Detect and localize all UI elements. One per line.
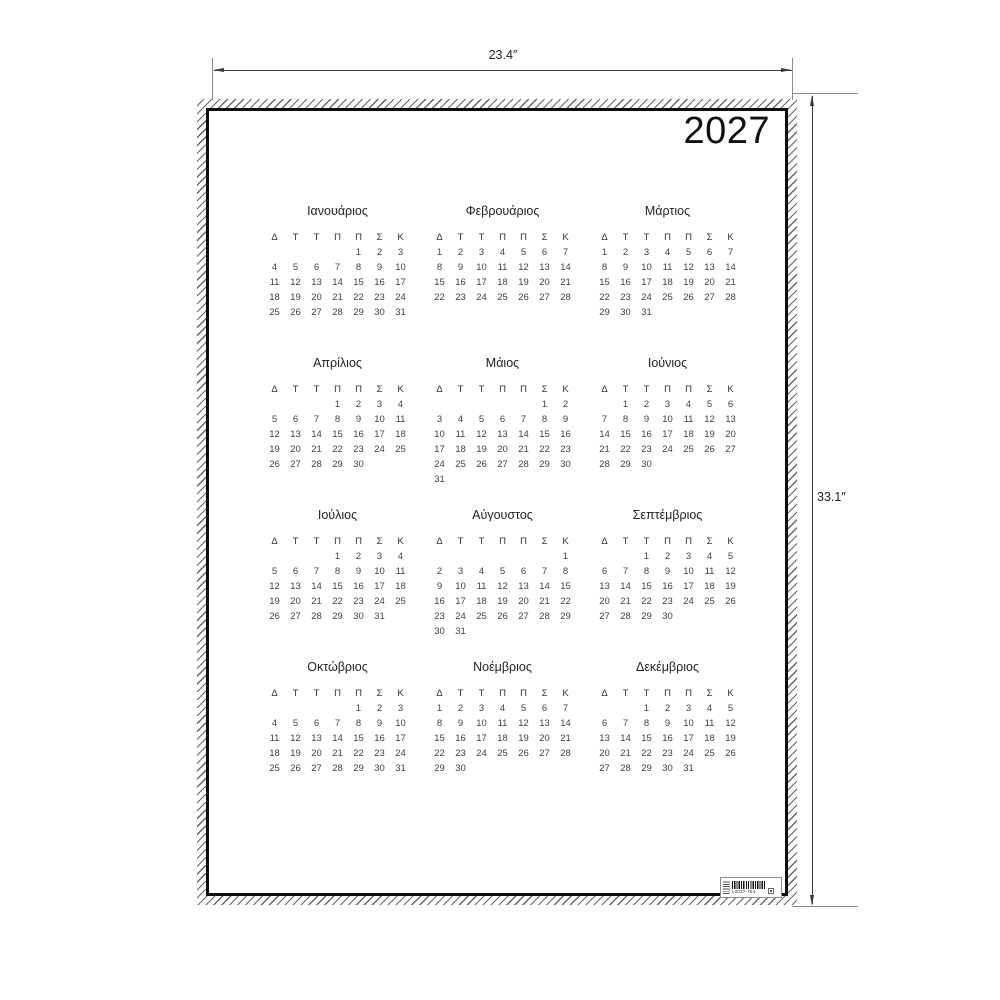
week-row: 6789101112 <box>594 716 741 731</box>
day-cell: 16 <box>636 427 657 442</box>
day-header: Π <box>327 685 348 701</box>
day-cell: 15 <box>327 427 348 442</box>
day-header-row: ΔΤΤΠΠΣΚ <box>264 229 411 245</box>
day-header: Δ <box>264 381 285 397</box>
day-cell: 19 <box>720 579 741 594</box>
day-cell: 26 <box>513 290 534 305</box>
day-cell: 5 <box>264 564 285 579</box>
day-cell <box>264 245 285 260</box>
calendar-poster: 2027 ΙανουάριοςΔΤΤΠΠΣΚ123456789101112131… <box>206 108 788 896</box>
day-cell: 9 <box>369 716 390 731</box>
day-cell: 25 <box>264 305 285 320</box>
week-row: 16171819202122 <box>429 594 576 609</box>
day-cell <box>264 701 285 716</box>
week-row: 3031 <box>429 624 576 639</box>
day-cell: 26 <box>492 609 513 624</box>
day-cell: 21 <box>513 442 534 457</box>
week-row: 3456789 <box>429 412 576 427</box>
day-cell: 3 <box>390 245 411 260</box>
day-cell: 29 <box>348 305 369 320</box>
month-block: ΙανουάριοςΔΤΤΠΠΣΚ12345678910111213141516… <box>264 204 411 356</box>
day-cell: 18 <box>390 579 411 594</box>
day-cell: 10 <box>471 260 492 275</box>
day-cell: 31 <box>678 761 699 776</box>
day-header: Σ <box>699 381 720 397</box>
day-cell: 8 <box>615 412 636 427</box>
day-cell: 18 <box>450 442 471 457</box>
day-cell <box>369 457 390 472</box>
day-cell: 29 <box>534 457 555 472</box>
day-cell: 14 <box>720 260 741 275</box>
day-cell: 31 <box>369 609 390 624</box>
day-cell: 9 <box>657 716 678 731</box>
months-grid: ΙανουάριοςΔΤΤΠΠΣΚ12345678910111213141516… <box>264 204 741 812</box>
week-row: 19202122232425 <box>264 442 411 457</box>
week-row: 1234567 <box>429 245 576 260</box>
day-header: Π <box>492 381 513 397</box>
day-header: Τ <box>636 533 657 549</box>
day-cell: 25 <box>492 746 513 761</box>
day-cell <box>513 761 534 776</box>
week-row: 293031 <box>594 305 741 320</box>
month-calendar: ΔΤΤΠΠΣΚ123456789101112131415161718192021… <box>429 229 576 305</box>
day-cell: 25 <box>390 442 411 457</box>
day-cell <box>492 761 513 776</box>
week-row: 891011121314 <box>429 260 576 275</box>
bleed-hatch-frame: 2027 ΙανουάριοςΔΤΤΠΠΣΚ123456789101112131… <box>197 99 797 905</box>
day-cell: 1 <box>327 549 348 564</box>
day-header: Τ <box>306 685 327 701</box>
day-cell: 18 <box>657 275 678 290</box>
day-cell: 9 <box>429 579 450 594</box>
day-cell: 23 <box>348 442 369 457</box>
day-cell: 7 <box>534 564 555 579</box>
day-cell: 4 <box>699 549 720 564</box>
day-cell: 25 <box>492 290 513 305</box>
day-cell: 20 <box>513 594 534 609</box>
week-row: 123 <box>264 701 411 716</box>
month-calendar: ΔΤΤΠΠΣΚ123456789101112131415161718192021… <box>264 685 411 776</box>
day-header: Π <box>327 533 348 549</box>
day-cell: 18 <box>492 275 513 290</box>
day-cell: 25 <box>450 457 471 472</box>
day-cell: 26 <box>264 609 285 624</box>
day-cell: 21 <box>615 594 636 609</box>
day-header: Τ <box>285 229 306 245</box>
day-cell: 20 <box>534 731 555 746</box>
week-row: 18192021222324 <box>264 746 411 761</box>
day-header: Τ <box>471 685 492 701</box>
day-header: Τ <box>636 381 657 397</box>
day-cell: 10 <box>471 716 492 731</box>
day-cell: 24 <box>369 442 390 457</box>
day-cell: 28 <box>615 609 636 624</box>
day-cell <box>306 549 327 564</box>
day-cell: 1 <box>429 701 450 716</box>
day-cell: 14 <box>327 731 348 746</box>
day-header: Κ <box>720 381 741 397</box>
day-cell: 1 <box>636 701 657 716</box>
day-header: Κ <box>390 229 411 245</box>
day-header: Κ <box>555 533 576 549</box>
day-cell <box>285 397 306 412</box>
week-row: 13141516171819 <box>594 579 741 594</box>
day-cell: 9 <box>615 260 636 275</box>
dim-extension-right-bottom <box>792 906 858 907</box>
week-row: 12131415161718 <box>264 579 411 594</box>
day-header-row: ΔΤΤΠΠΣΚ <box>429 533 576 549</box>
day-cell: 18 <box>699 731 720 746</box>
dim-arrow-up-icon <box>810 95 814 106</box>
week-row: 45678910 <box>264 716 411 731</box>
day-cell: 9 <box>450 716 471 731</box>
day-cell: 5 <box>513 701 534 716</box>
day-cell <box>513 549 534 564</box>
day-cell: 5 <box>285 260 306 275</box>
month-calendar: ΔΤΤΠΠΣΚ123456789101112131415161718192021… <box>429 381 576 487</box>
day-cell: 19 <box>471 442 492 457</box>
day-cell: 20 <box>594 746 615 761</box>
day-cell: 1 <box>636 549 657 564</box>
day-cell: 11 <box>471 579 492 594</box>
day-cell: 7 <box>615 716 636 731</box>
day-cell: 15 <box>594 275 615 290</box>
day-cell: 10 <box>369 412 390 427</box>
day-cell: 21 <box>534 594 555 609</box>
day-cell: 8 <box>429 716 450 731</box>
day-cell: 8 <box>348 716 369 731</box>
day-cell: 24 <box>471 746 492 761</box>
week-row: 18192021222324 <box>264 290 411 305</box>
day-cell: 12 <box>678 260 699 275</box>
barcode-center: L2027-754 <box>732 881 766 894</box>
day-cell: 26 <box>513 746 534 761</box>
week-row: 567891011 <box>264 412 411 427</box>
day-cell: 25 <box>699 594 720 609</box>
month-title: Απρίλιος <box>264 356 411 370</box>
day-header: Τ <box>471 381 492 397</box>
day-cell: 4 <box>699 701 720 716</box>
month-block: ΑύγουστοςΔΤΤΠΠΣΚ123456789101112131415161… <box>429 508 576 660</box>
day-header: Τ <box>285 381 306 397</box>
day-cell: 17 <box>657 427 678 442</box>
day-cell: 31 <box>390 761 411 776</box>
day-cell: 9 <box>636 412 657 427</box>
day-cell: 6 <box>594 716 615 731</box>
day-cell: 21 <box>555 731 576 746</box>
day-cell: 23 <box>657 594 678 609</box>
day-cell: 30 <box>657 609 678 624</box>
day-header: Κ <box>720 685 741 701</box>
day-cell: 4 <box>678 397 699 412</box>
day-cell: 24 <box>450 609 471 624</box>
day-cell: 17 <box>390 275 411 290</box>
day-cell: 27 <box>285 457 306 472</box>
day-cell: 7 <box>513 412 534 427</box>
week-row: 1234567 <box>594 245 741 260</box>
day-cell <box>492 549 513 564</box>
month-title: Δεκέμβριος <box>594 660 741 674</box>
day-cell: 21 <box>720 275 741 290</box>
day-cell: 11 <box>450 427 471 442</box>
day-cell: 18 <box>390 427 411 442</box>
day-cell: 2 <box>369 245 390 260</box>
day-cell: 21 <box>615 746 636 761</box>
day-cell <box>306 397 327 412</box>
day-cell: 10 <box>369 564 390 579</box>
day-cell: 3 <box>429 412 450 427</box>
day-cell <box>471 624 492 639</box>
day-header: Π <box>348 685 369 701</box>
day-cell <box>720 305 741 320</box>
day-cell: 19 <box>678 275 699 290</box>
day-cell: 5 <box>285 716 306 731</box>
day-cell: 13 <box>492 427 513 442</box>
day-cell: 15 <box>636 579 657 594</box>
day-cell: 2 <box>429 564 450 579</box>
month-title: Αύγουστος <box>429 508 576 522</box>
day-header: Κ <box>555 381 576 397</box>
day-cell: 4 <box>264 260 285 275</box>
day-header: Τ <box>615 381 636 397</box>
day-cell: 11 <box>492 260 513 275</box>
day-cell: 2 <box>657 549 678 564</box>
day-cell: 11 <box>264 731 285 746</box>
day-cell: 28 <box>555 746 576 761</box>
day-cell: 22 <box>348 746 369 761</box>
day-cell: 1 <box>555 549 576 564</box>
day-cell: 5 <box>264 412 285 427</box>
day-cell: 28 <box>327 761 348 776</box>
day-header: Τ <box>450 685 471 701</box>
week-row: 21222324252627 <box>594 442 741 457</box>
year-title: 2027 <box>683 111 770 151</box>
day-cell: 23 <box>348 594 369 609</box>
month-block: ΣεπτέμβριοςΔΤΤΠΠΣΚ1234567891011121314151… <box>594 508 741 660</box>
day-cell: 23 <box>369 290 390 305</box>
day-cell: 7 <box>594 412 615 427</box>
day-cell: 22 <box>636 594 657 609</box>
week-row: 14151617181920 <box>594 427 741 442</box>
day-cell <box>534 472 555 487</box>
day-header-row: ΔΤΤΠΠΣΚ <box>594 229 741 245</box>
day-cell: 4 <box>390 397 411 412</box>
dim-line-height <box>812 96 813 904</box>
dim-arrow-down-icon <box>810 895 814 906</box>
day-cell: 3 <box>678 701 699 716</box>
day-cell: 27 <box>699 290 720 305</box>
barcode-bars-icon <box>732 881 766 889</box>
week-row: 10111213141516 <box>429 427 576 442</box>
day-cell: 25 <box>264 761 285 776</box>
day-cell: 5 <box>471 412 492 427</box>
day-cell: 23 <box>429 609 450 624</box>
day-cell <box>699 761 720 776</box>
day-cell: 6 <box>594 564 615 579</box>
day-cell: 7 <box>306 564 327 579</box>
week-row: 19202122232425 <box>264 594 411 609</box>
day-cell: 22 <box>555 594 576 609</box>
day-cell: 20 <box>720 427 741 442</box>
day-cell: 15 <box>429 731 450 746</box>
day-cell <box>327 245 348 260</box>
day-cell: 9 <box>555 412 576 427</box>
day-cell: 28 <box>720 290 741 305</box>
day-cell: 20 <box>285 594 306 609</box>
day-cell <box>429 549 450 564</box>
day-cell: 22 <box>534 442 555 457</box>
month-block: ΙούλιοςΔΤΤΠΠΣΚ12345678910111213141516171… <box>264 508 411 660</box>
day-header-row: ΔΤΤΠΠΣΚ <box>429 229 576 245</box>
day-cell: 16 <box>657 731 678 746</box>
day-cell: 11 <box>657 260 678 275</box>
day-cell: 30 <box>348 609 369 624</box>
day-cell: 13 <box>285 427 306 442</box>
day-header: Δ <box>429 381 450 397</box>
day-header: Τ <box>306 533 327 549</box>
day-cell: 2 <box>450 245 471 260</box>
day-cell: 29 <box>594 305 615 320</box>
day-cell: 6 <box>306 260 327 275</box>
day-header-row: ΔΤΤΠΠΣΚ <box>429 685 576 701</box>
day-header: Π <box>327 229 348 245</box>
day-cell: 26 <box>720 746 741 761</box>
week-row: 24252627282930 <box>429 457 576 472</box>
day-header: Τ <box>285 685 306 701</box>
day-cell: 21 <box>327 290 348 305</box>
day-cell: 28 <box>615 761 636 776</box>
day-cell: 17 <box>450 594 471 609</box>
day-header: Π <box>657 685 678 701</box>
day-cell: 14 <box>534 579 555 594</box>
day-cell: 13 <box>594 579 615 594</box>
day-cell <box>555 472 576 487</box>
day-cell: 6 <box>699 245 720 260</box>
day-cell: 23 <box>369 746 390 761</box>
day-cell <box>450 472 471 487</box>
day-cell <box>513 624 534 639</box>
month-calendar: ΔΤΤΠΠΣΚ123456789101112131415161718192021… <box>594 381 741 472</box>
day-cell: 2 <box>369 701 390 716</box>
month-title: Ιούνιος <box>594 356 741 370</box>
day-cell: 4 <box>492 701 513 716</box>
day-cell: 30 <box>615 305 636 320</box>
day-cell: 10 <box>636 260 657 275</box>
week-row: 1234 <box>264 397 411 412</box>
week-row: 891011121314 <box>429 716 576 731</box>
day-cell: 28 <box>594 457 615 472</box>
day-cell: 24 <box>678 594 699 609</box>
day-cell: 23 <box>636 442 657 457</box>
day-cell: 29 <box>348 761 369 776</box>
day-cell: 24 <box>636 290 657 305</box>
day-cell: 1 <box>615 397 636 412</box>
month-title: Οκτώβριος <box>264 660 411 674</box>
day-cell: 16 <box>657 579 678 594</box>
day-cell: 15 <box>534 427 555 442</box>
week-row: 22232425262728 <box>429 746 576 761</box>
day-cell: 28 <box>306 609 327 624</box>
month-title: Μάρτιος <box>594 204 741 218</box>
day-cell: 17 <box>471 275 492 290</box>
day-cell: 9 <box>348 412 369 427</box>
day-header: Π <box>657 229 678 245</box>
day-cell: 10 <box>390 716 411 731</box>
day-cell: 13 <box>513 579 534 594</box>
day-cell: 29 <box>327 457 348 472</box>
day-cell <box>471 761 492 776</box>
day-header: Τ <box>471 533 492 549</box>
day-header: Δ <box>594 381 615 397</box>
day-cell: 13 <box>306 731 327 746</box>
day-cell: 8 <box>555 564 576 579</box>
day-cell: 21 <box>594 442 615 457</box>
day-cell: 31 <box>390 305 411 320</box>
day-cell: 2 <box>450 701 471 716</box>
week-row: 123 <box>264 245 411 260</box>
day-header: Π <box>348 533 369 549</box>
week-row: 1 <box>429 549 576 564</box>
day-cell: 19 <box>699 427 720 442</box>
height-dimension-label: 33.1″ <box>817 490 846 504</box>
week-row: 2627282930 <box>264 457 411 472</box>
day-cell: 1 <box>327 397 348 412</box>
day-cell: 26 <box>285 305 306 320</box>
day-cell: 16 <box>369 731 390 746</box>
day-cell: 7 <box>555 701 576 716</box>
day-cell: 6 <box>492 412 513 427</box>
day-cell: 11 <box>390 564 411 579</box>
day-cell <box>594 549 615 564</box>
day-header: Τ <box>615 685 636 701</box>
day-cell: 3 <box>657 397 678 412</box>
week-row: 25262728293031 <box>264 305 411 320</box>
day-cell: 30 <box>369 761 390 776</box>
day-cell: 2 <box>657 701 678 716</box>
day-cell: 23 <box>657 746 678 761</box>
dim-arrow-right-icon <box>781 68 792 72</box>
day-cell: 8 <box>327 564 348 579</box>
day-cell <box>492 472 513 487</box>
day-cell: 3 <box>450 564 471 579</box>
week-row: 78910111213 <box>594 412 741 427</box>
day-cell: 12 <box>471 427 492 442</box>
day-cell: 13 <box>306 275 327 290</box>
day-cell: 29 <box>327 609 348 624</box>
week-row: 11121314151617 <box>264 275 411 290</box>
day-cell: 13 <box>534 260 555 275</box>
day-cell: 28 <box>555 290 576 305</box>
day-cell: 16 <box>348 427 369 442</box>
day-cell <box>285 549 306 564</box>
day-cell: 29 <box>555 609 576 624</box>
day-cell: 27 <box>534 746 555 761</box>
month-block: ΦεβρουάριοςΔΤΤΠΠΣΚ1234567891011121314151… <box>429 204 576 356</box>
day-cell: 6 <box>534 701 555 716</box>
day-cell: 19 <box>264 442 285 457</box>
day-cell: 3 <box>636 245 657 260</box>
day-cell: 27 <box>306 305 327 320</box>
month-block: ΜάιοςΔΤΤΠΠΣΚ1234567891011121314151617181… <box>429 356 576 508</box>
day-cell: 23 <box>615 290 636 305</box>
day-cell: 10 <box>390 260 411 275</box>
day-header-row: ΔΤΤΠΠΣΚ <box>594 381 741 397</box>
day-cell: 30 <box>348 457 369 472</box>
day-header-row: ΔΤΤΠΠΣΚ <box>264 685 411 701</box>
day-header-row: ΔΤΤΠΠΣΚ <box>429 381 576 397</box>
day-header: Κ <box>390 381 411 397</box>
day-cell: 29 <box>429 761 450 776</box>
